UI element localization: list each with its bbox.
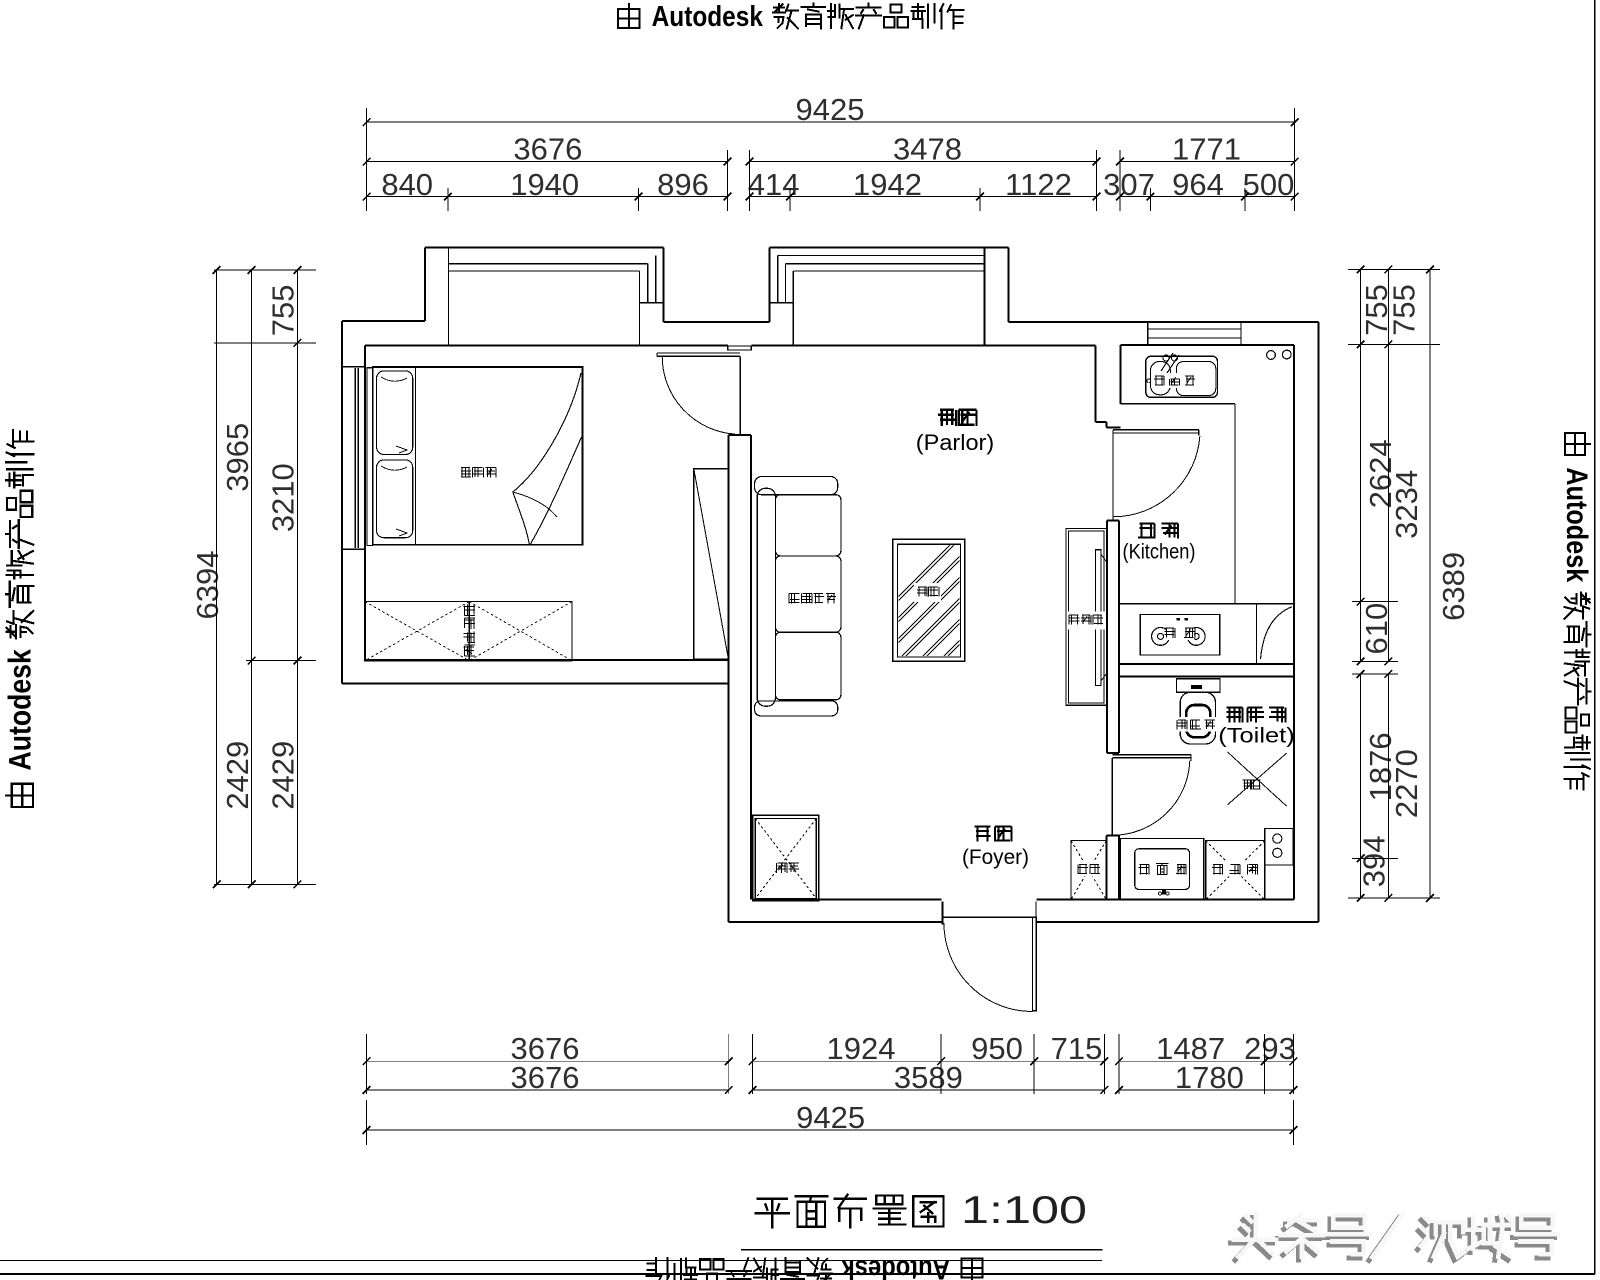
svg-text:896: 896 — [657, 167, 709, 202]
svg-text:394: 394 — [1356, 836, 1391, 888]
svg-text:1122: 1122 — [1005, 167, 1072, 202]
svg-text:Autodesk: Autodesk — [2, 649, 38, 771]
svg-text:2429: 2429 — [220, 741, 255, 810]
svg-text:6389: 6389 — [1436, 552, 1471, 621]
svg-text:293: 293 — [1244, 1031, 1296, 1066]
svg-text:840: 840 — [381, 167, 433, 202]
svg-text:(Toilet): (Toilet) — [1218, 725, 1295, 748]
svg-text:(Parlor): (Parlor) — [916, 430, 994, 455]
svg-text:1771: 1771 — [1172, 132, 1241, 167]
svg-text:715: 715 — [1051, 1031, 1103, 1066]
svg-text:950: 950 — [971, 1031, 1023, 1066]
svg-text:3210: 3210 — [266, 463, 301, 532]
svg-text:610: 610 — [1359, 603, 1394, 655]
svg-text:9425: 9425 — [796, 92, 865, 127]
svg-text:Autodesk: Autodesk — [652, 1, 764, 33]
svg-text:1940: 1940 — [510, 167, 579, 202]
svg-text:Autodesk: Autodesk — [1560, 467, 1593, 582]
svg-text:307: 307 — [1103, 167, 1155, 202]
svg-text:3478: 3478 — [893, 132, 962, 167]
svg-text:964: 964 — [1172, 167, 1224, 202]
svg-text:1924: 1924 — [827, 1031, 896, 1066]
svg-text:3234: 3234 — [1389, 470, 1424, 539]
svg-text:3589: 3589 — [894, 1060, 963, 1095]
svg-text:9425: 9425 — [796, 1100, 865, 1135]
svg-text:1942: 1942 — [853, 167, 922, 202]
svg-text:755: 755 — [266, 285, 301, 337]
svg-text:3676: 3676 — [513, 132, 582, 167]
svg-text:500: 500 — [1243, 167, 1295, 202]
svg-text:755: 755 — [1387, 284, 1422, 336]
svg-text:(Foyer): (Foyer) — [962, 846, 1029, 869]
svg-text:3965: 3965 — [220, 423, 255, 492]
svg-text:1:100: 1:100 — [961, 1189, 1087, 1232]
svg-text:6394: 6394 — [190, 551, 225, 620]
svg-text:414: 414 — [748, 167, 800, 202]
svg-text:Autodesk: Autodesk — [841, 1255, 949, 1280]
svg-text:2429: 2429 — [266, 741, 301, 810]
svg-text:2270: 2270 — [1389, 749, 1424, 818]
svg-text:3676: 3676 — [511, 1060, 580, 1095]
svg-text:(Kitchen): (Kitchen) — [1123, 541, 1196, 564]
svg-text:1780: 1780 — [1175, 1060, 1244, 1095]
